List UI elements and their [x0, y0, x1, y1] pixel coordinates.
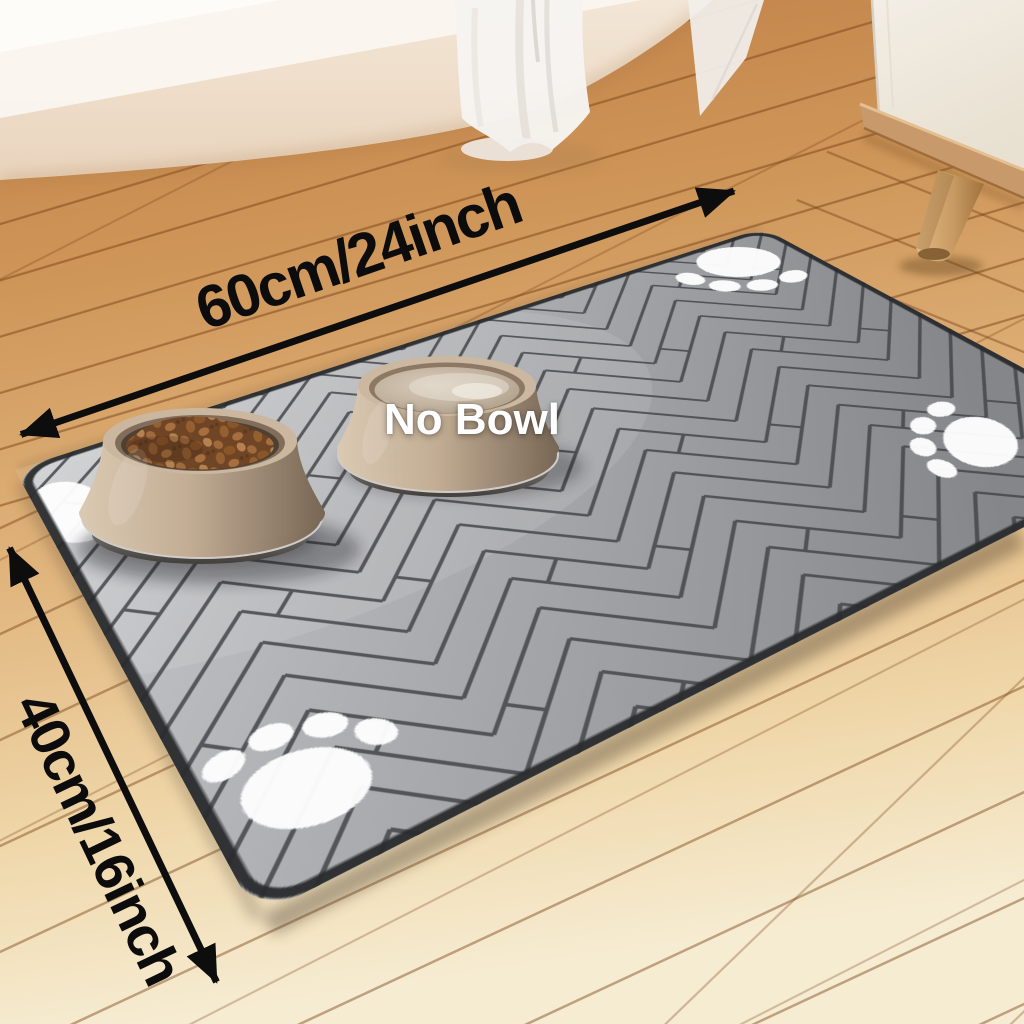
food-bowl	[76, 408, 360, 585]
product-photo-scene: 60cm/24inch 40cm/16inch No Bowl	[0, 0, 1024, 1024]
no-bowl-label: No Bowl	[384, 395, 560, 445]
foreground-layer	[0, 0, 1024, 1024]
